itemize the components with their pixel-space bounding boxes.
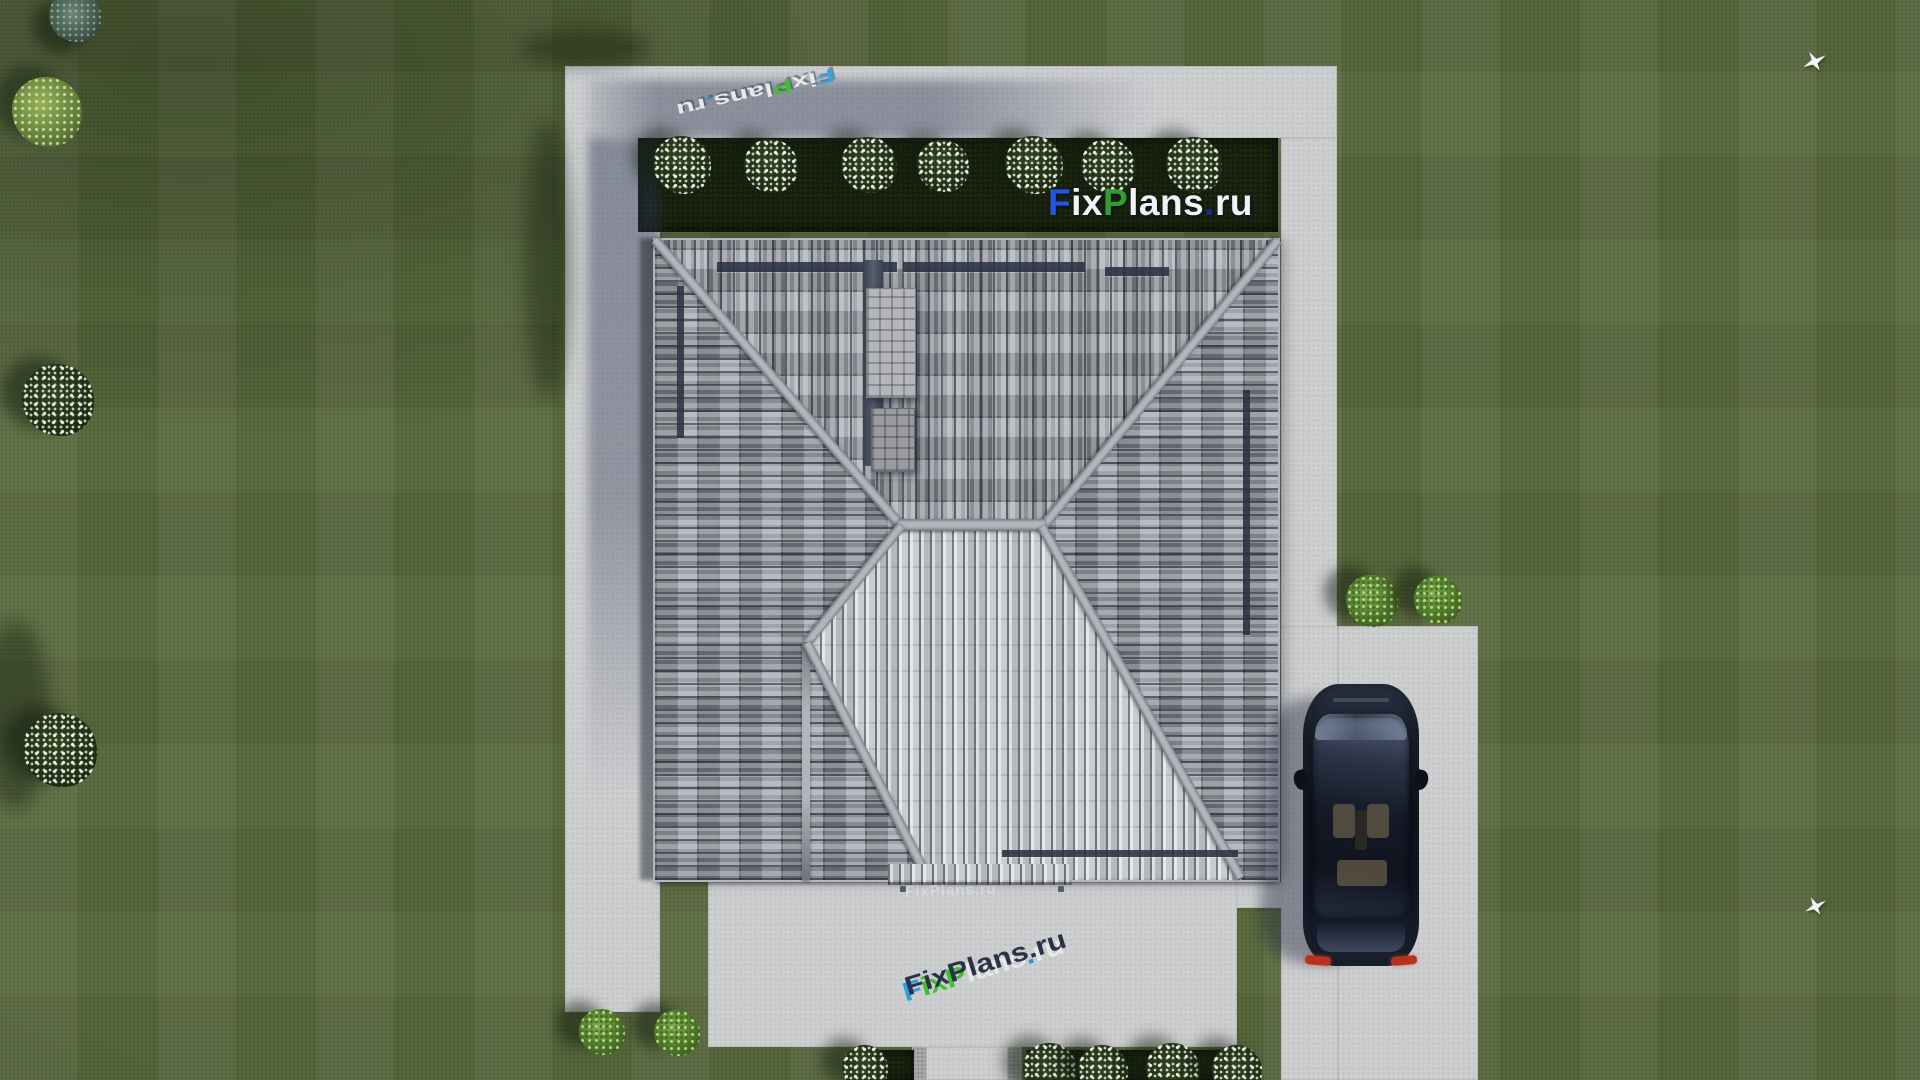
logo-letter-f: F [1048, 182, 1071, 223]
car-hood-highlight [1333, 698, 1389, 702]
snow-guard-west [677, 286, 684, 438]
front-path-border-left [912, 1047, 926, 1080]
car [1255, 670, 1485, 990]
pine-shrub [49, 0, 101, 42]
logo-letters-lans: lans [1128, 182, 1204, 223]
watermark-stamp-faint: FixPlans.ru [905, 881, 997, 900]
hip-roof [655, 240, 1278, 880]
flowering-bush [917, 140, 969, 192]
pavement-right-walkway [1281, 138, 1337, 630]
logo-letters-ix: ix [1071, 182, 1103, 223]
flowering-bush [841, 137, 897, 193]
car-console [1355, 810, 1367, 850]
grass-shadow-topleft [520, 30, 650, 66]
logo-dot: . [1204, 182, 1215, 223]
car-seat-left [1333, 804, 1355, 838]
roof-main-ridge [898, 519, 1045, 531]
snow-guard-north-far [1105, 267, 1169, 276]
car-rear-glass [1317, 922, 1405, 952]
chimney-secondary [871, 408, 915, 472]
lawn-bush [1346, 575, 1398, 627]
car-taillight-right [1391, 955, 1418, 966]
aerial-house-render: FixPlans.ru [0, 0, 1920, 1080]
lawn-bush [579, 1009, 625, 1055]
car-windshield [1315, 714, 1407, 740]
porch-post-right [1058, 886, 1064, 892]
flowering-bush [23, 713, 97, 787]
car-body [1303, 684, 1419, 966]
bird-icon [1802, 894, 1828, 916]
flowering-bush [653, 136, 711, 194]
flowering-bush [22, 364, 94, 436]
car-seat-right [1367, 804, 1389, 838]
flowering-bush [744, 139, 798, 193]
roof-edge-vertical [802, 643, 810, 880]
watermark-logo-main: FixPlans.ru [1048, 182, 1253, 224]
logo-letters-ru: ru [1215, 182, 1253, 223]
lawn-bush [12, 77, 82, 147]
flowering-bush [1212, 1045, 1262, 1080]
car-mirror-right [1412, 769, 1430, 792]
flowering-bush [1146, 1043, 1200, 1080]
car-rear-bench [1337, 860, 1387, 886]
snow-guard-south [1002, 850, 1238, 857]
logo-letter-p: P [1103, 182, 1128, 223]
flowering-bush [1023, 1043, 1077, 1080]
chimney-main [866, 288, 916, 398]
lawn-bush [1414, 576, 1462, 624]
car-taillight-left [1305, 955, 1332, 966]
lawn-bush [654, 1010, 700, 1056]
snow-guard-north-right [903, 262, 1085, 272]
snow-guard-east [1243, 390, 1250, 635]
front-path-border-right [1008, 1047, 1022, 1080]
front-path [926, 1047, 1008, 1080]
bird-icon [1800, 48, 1828, 72]
